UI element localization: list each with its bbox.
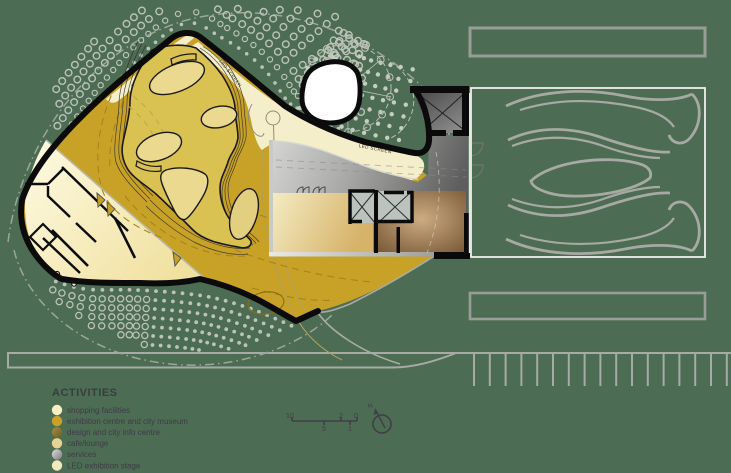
svg-text:0: 0	[354, 413, 358, 420]
svg-text:5: 5	[322, 426, 326, 433]
svg-text:1: 1	[348, 426, 352, 433]
svg-text:shopping facilities: shopping facilities	[67, 406, 130, 415]
svg-text:2: 2	[339, 413, 343, 420]
svg-text:exhibition centre and city mus: exhibition centre and city museum	[67, 417, 188, 426]
svg-text:ACTIVITIES: ACTIVITIES	[52, 387, 118, 399]
svg-text:LED exhibition stage: LED exhibition stage	[67, 461, 141, 470]
svg-text:10: 10	[286, 413, 294, 420]
svg-text:services: services	[67, 450, 96, 459]
svg-text:design and city info centre: design and city info centre	[67, 428, 160, 437]
svg-text:cafe/lounge: cafe/lounge	[67, 439, 109, 448]
